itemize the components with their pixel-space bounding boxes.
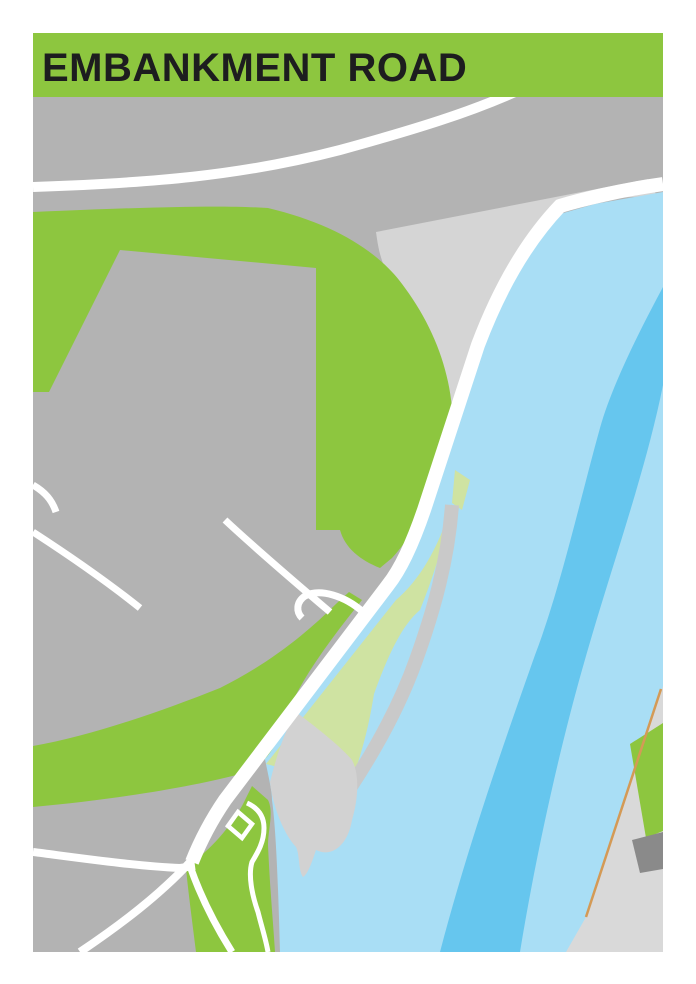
svg-text:EMBANKMENT ROAD: EMBANKMENT ROAD <box>42 46 467 90</box>
